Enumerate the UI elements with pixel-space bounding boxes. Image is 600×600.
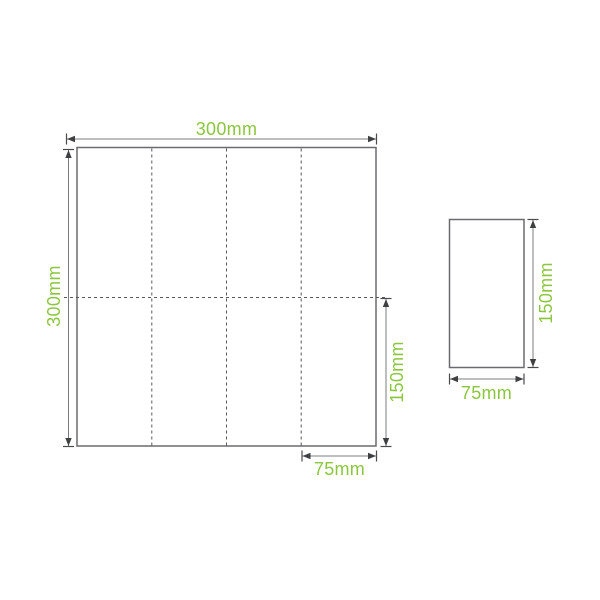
unfolded-width-label: 300mm: [77, 118, 376, 140]
folded-napkin-outline: [450, 220, 525, 368]
folded-width-label: 75mm: [449, 382, 524, 404]
unfolded-height-label: 300mm: [43, 146, 65, 446]
fold-width-label: 75mm: [302, 458, 377, 480]
diagram-linework: [0, 0, 600, 600]
fold-height-label: 150mm: [386, 292, 408, 452]
folded-height-label: 150mm: [535, 213, 557, 373]
napkin-dimension-diagram: 300mm 300mm 150mm 75mm 150mm 75mm: [0, 0, 600, 600]
